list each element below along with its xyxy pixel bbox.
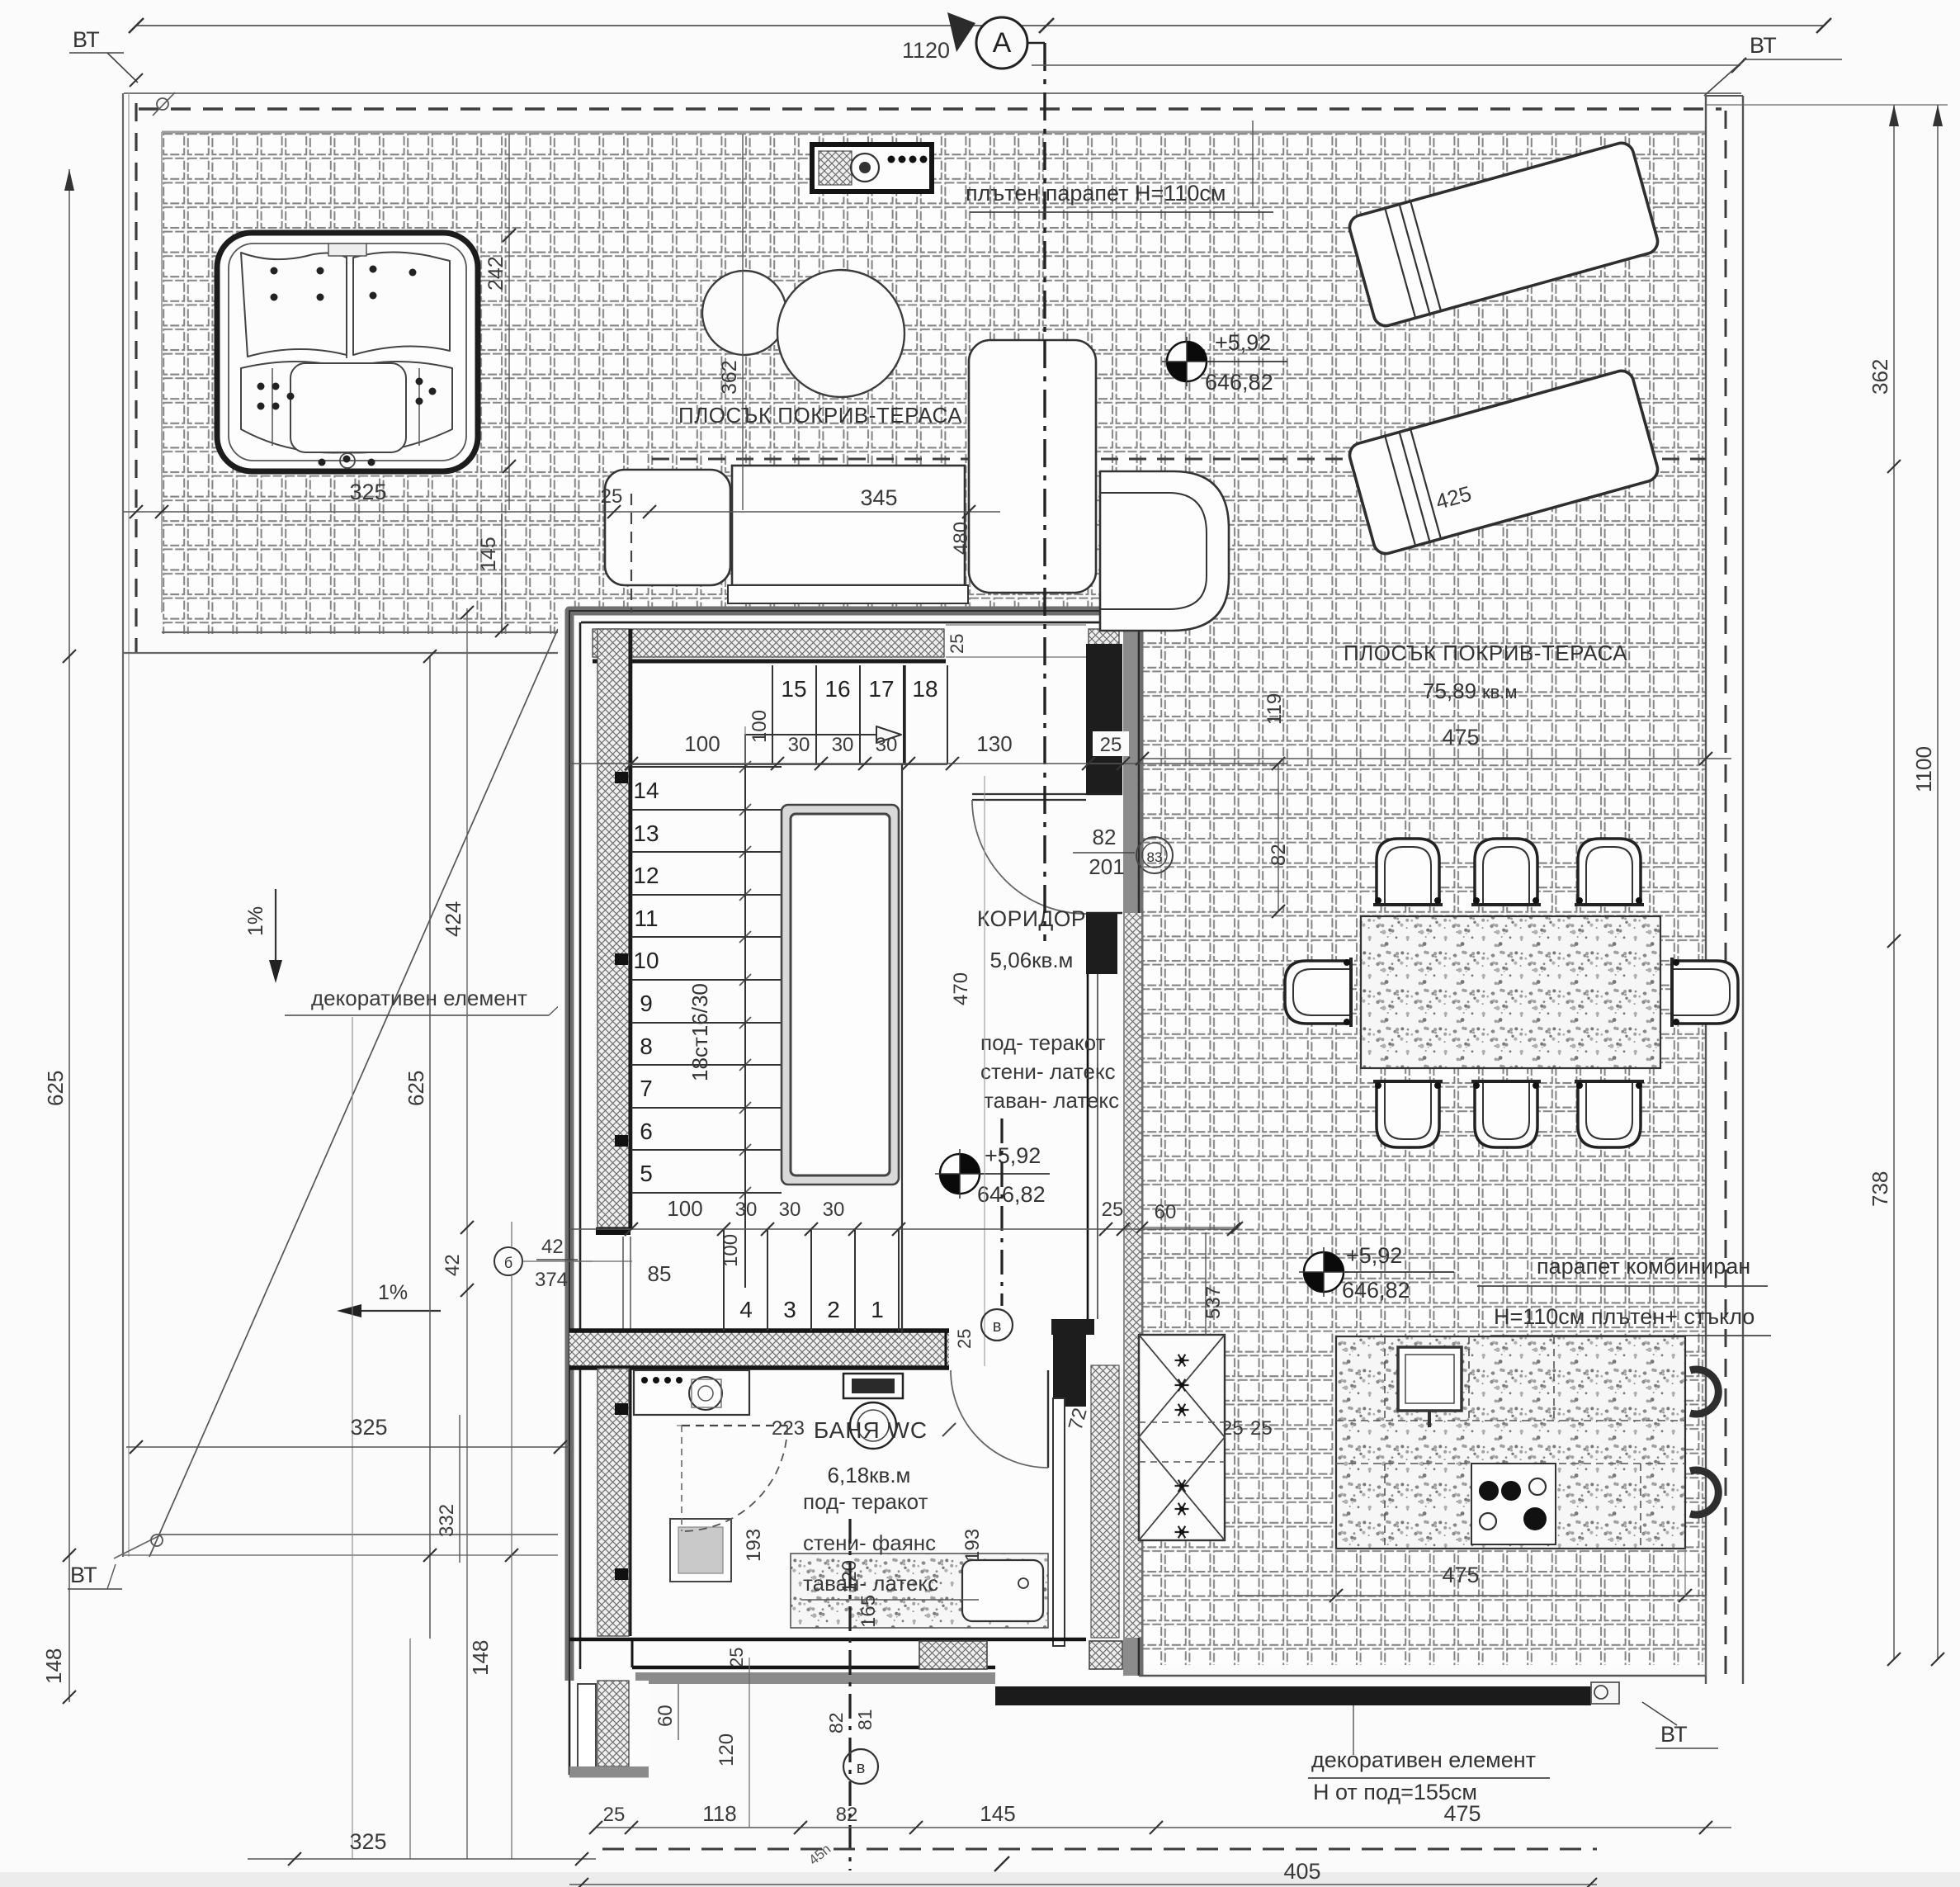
svg-text:Н=110см плътен+ стъкло: Н=110см плътен+ стъкло bbox=[1494, 1304, 1755, 1329]
svg-text:25: 25 bbox=[954, 1329, 975, 1349]
svg-text:165: 165 bbox=[857, 1595, 880, 1628]
svg-text:18ст16/30: 18ст16/30 bbox=[687, 983, 712, 1081]
svg-text:120: 120 bbox=[716, 1733, 738, 1766]
svg-text:193: 193 bbox=[961, 1529, 984, 1562]
svg-text:3: 3 bbox=[783, 1297, 796, 1322]
svg-text:362: 362 bbox=[1868, 359, 1892, 395]
svg-text:16: 16 bbox=[824, 676, 850, 702]
svg-text:+5,92: +5,92 bbox=[1346, 1243, 1402, 1268]
svg-text:7: 7 bbox=[640, 1076, 653, 1101]
svg-text:25: 25 bbox=[726, 1648, 747, 1667]
svg-text:223: 223 bbox=[772, 1417, 805, 1440]
svg-text:646,82: 646,82 bbox=[977, 1182, 1046, 1207]
svg-text:9: 9 bbox=[640, 991, 653, 1016]
svg-text:738: 738 bbox=[1868, 1171, 1892, 1207]
svg-text:13: 13 bbox=[633, 821, 659, 846]
svg-text:85: 85 bbox=[648, 1261, 672, 1286]
svg-text:60: 60 bbox=[654, 1705, 677, 1727]
svg-text:в: в bbox=[857, 1759, 866, 1777]
svg-text:100: 100 bbox=[720, 1234, 742, 1267]
svg-text:25: 25 bbox=[1100, 734, 1122, 756]
svg-text:537: 537 bbox=[1202, 1286, 1225, 1319]
svg-text:таван- латекс: таван- латекс bbox=[803, 1571, 938, 1596]
svg-text:42: 42 bbox=[541, 1236, 564, 1258]
svg-text:325: 325 bbox=[350, 1415, 387, 1440]
svg-text:25: 25 bbox=[1250, 1417, 1273, 1440]
svg-text:1100: 1100 bbox=[1911, 746, 1936, 792]
svg-text:таван- латекс: таван- латекс bbox=[984, 1088, 1119, 1113]
svg-text:75,89: 75,89 bbox=[1423, 679, 1476, 703]
svg-text:ВТ: ВТ bbox=[1660, 1722, 1688, 1747]
svg-text:6,18кв.м: 6,18кв.м bbox=[828, 1463, 911, 1487]
svg-text:ПЛОСЪК ПОКРИВ-ТЕРАСА: ПЛОСЪК ПОКРИВ-ТЕРАСА bbox=[1344, 641, 1627, 665]
svg-text:119: 119 bbox=[1263, 693, 1286, 725]
svg-text:5: 5 bbox=[640, 1161, 653, 1186]
svg-text:8: 8 bbox=[640, 1033, 653, 1059]
svg-text:646,82: 646,82 bbox=[1205, 370, 1273, 395]
svg-text:30: 30 bbox=[788, 734, 810, 756]
svg-text:83: 83 bbox=[1147, 849, 1163, 865]
svg-text:362: 362 bbox=[718, 360, 741, 395]
svg-text:145: 145 bbox=[980, 1801, 1015, 1826]
svg-text:парапет комбиниран: парапет комбиниран bbox=[1537, 1254, 1750, 1279]
svg-text:11: 11 bbox=[634, 906, 658, 931]
svg-text:в: в bbox=[993, 1317, 1002, 1336]
svg-text:стени- латекс: стени- латекс bbox=[980, 1059, 1116, 1084]
svg-text:100: 100 bbox=[667, 1196, 702, 1221]
svg-text:148: 148 bbox=[468, 1640, 493, 1676]
svg-text:405: 405 bbox=[1283, 1859, 1320, 1884]
svg-text:1120: 1120 bbox=[902, 38, 950, 63]
svg-text:625: 625 bbox=[404, 1071, 428, 1106]
svg-text:100: 100 bbox=[684, 731, 720, 756]
svg-text:325: 325 bbox=[349, 1829, 386, 1854]
svg-text:148: 148 bbox=[41, 1648, 66, 1684]
svg-text:стени- фаянс: стени- фаянс bbox=[803, 1530, 936, 1555]
svg-text:130: 130 bbox=[976, 731, 1012, 756]
svg-text:б: б bbox=[504, 1255, 512, 1271]
svg-text:плътен парапет Н=110см: плътен парапет Н=110см bbox=[966, 181, 1226, 206]
svg-text:12: 12 bbox=[633, 863, 659, 888]
svg-text:+5,92: +5,92 bbox=[1215, 330, 1271, 355]
svg-text:ВТ: ВТ bbox=[1750, 33, 1777, 58]
svg-text:30: 30 bbox=[823, 1199, 845, 1221]
svg-text:480: 480 bbox=[950, 522, 972, 555]
svg-text:30: 30 bbox=[735, 1199, 758, 1221]
svg-text:30: 30 bbox=[876, 734, 898, 756]
svg-text:14: 14 bbox=[633, 778, 659, 803]
svg-text:ВТ: ВТ bbox=[70, 1563, 97, 1587]
svg-text:242: 242 bbox=[484, 256, 508, 291]
svg-text:15: 15 bbox=[781, 676, 806, 702]
svg-text:118: 118 bbox=[702, 1801, 736, 1826]
svg-text:100: 100 bbox=[749, 710, 771, 743]
svg-text:25: 25 bbox=[601, 485, 623, 508]
svg-text:145: 145 bbox=[477, 537, 500, 571]
svg-text:+5,92: +5,92 bbox=[985, 1143, 1041, 1168]
svg-text:646,82: 646,82 bbox=[1342, 1278, 1410, 1303]
svg-text:625: 625 bbox=[43, 1071, 68, 1106]
svg-text:82: 82 bbox=[1268, 844, 1290, 866]
svg-text:424: 424 bbox=[441, 901, 465, 937]
svg-text:1%: 1% bbox=[378, 1281, 408, 1304]
svg-text:10: 10 bbox=[633, 948, 659, 973]
svg-text:42: 42 bbox=[442, 1254, 464, 1276]
svg-text:374: 374 bbox=[535, 1269, 568, 1291]
svg-text:81: 81 bbox=[854, 1709, 876, 1730]
svg-text:25: 25 bbox=[947, 634, 967, 654]
svg-text:1: 1 bbox=[871, 1297, 884, 1322]
svg-text:ПЛОСЪК ПОКРИВ-ТЕРАСА: ПЛОСЪК ПОКРИВ-ТЕРАСА bbox=[678, 403, 962, 428]
svg-text:декоративен елемент: декоративен елемент bbox=[1311, 1747, 1536, 1772]
svg-text:475: 475 bbox=[1442, 1563, 1479, 1587]
svg-text:17: 17 bbox=[868, 676, 894, 702]
svg-text:60: 60 bbox=[1155, 1201, 1177, 1223]
svg-text:A: A bbox=[993, 27, 1012, 59]
svg-text:КОРИДОР: КОРИДОР bbox=[977, 906, 1086, 931]
svg-text:332: 332 bbox=[436, 1504, 458, 1537]
svg-text:5,06кв.м: 5,06кв.м bbox=[990, 948, 1074, 972]
svg-text:475: 475 bbox=[1443, 1801, 1481, 1826]
svg-text:325: 325 bbox=[349, 480, 386, 504]
svg-text:475: 475 bbox=[1442, 725, 1479, 750]
svg-text:декоративен елемент: декоративен елемент bbox=[311, 986, 527, 1010]
svg-text:2: 2 bbox=[827, 1297, 840, 1322]
svg-text:30: 30 bbox=[779, 1199, 801, 1221]
svg-text:25: 25 bbox=[603, 1804, 626, 1826]
svg-text:под- теракот: под- теракот bbox=[980, 1030, 1106, 1055]
svg-text:БАНЯ WC: БАНЯ WC bbox=[814, 1417, 928, 1443]
svg-text:201: 201 bbox=[1089, 854, 1124, 879]
svg-text:кв.м: кв.м bbox=[1482, 682, 1518, 702]
svg-text:82: 82 bbox=[836, 1804, 858, 1826]
svg-text:470: 470 bbox=[950, 972, 972, 1005]
svg-text:82: 82 bbox=[825, 1712, 847, 1733]
svg-text:под- теракот: под- теракот bbox=[803, 1489, 928, 1514]
svg-text:193: 193 bbox=[743, 1529, 765, 1562]
svg-text:82: 82 bbox=[1093, 825, 1117, 849]
svg-text:18: 18 bbox=[912, 676, 937, 702]
svg-text:345: 345 bbox=[860, 485, 897, 510]
svg-text:6: 6 bbox=[640, 1118, 653, 1144]
svg-text:ВТ: ВТ bbox=[73, 27, 100, 52]
svg-text:25: 25 bbox=[1102, 1199, 1124, 1221]
svg-text:4: 4 bbox=[739, 1297, 753, 1322]
svg-text:30: 30 bbox=[832, 734, 854, 756]
svg-text:1%: 1% bbox=[244, 906, 267, 936]
